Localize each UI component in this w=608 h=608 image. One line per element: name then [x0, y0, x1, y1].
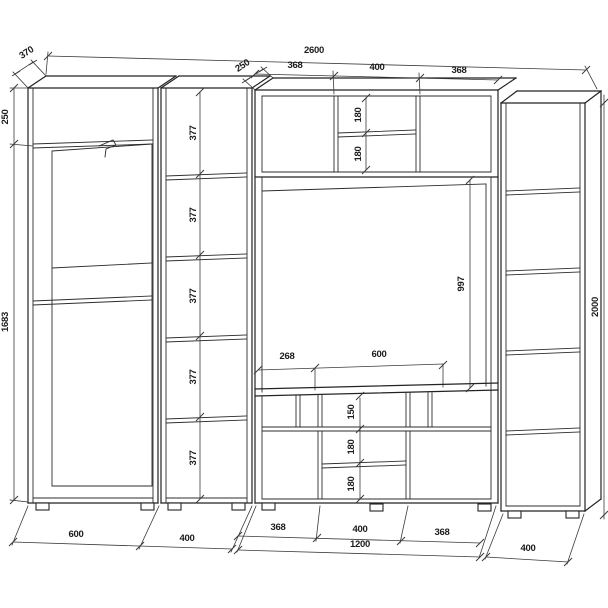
dim-top-400: 400 [370, 62, 385, 73]
top-hutch [255, 78, 516, 177]
dim-bench-180a: 180 [346, 440, 357, 455]
dim-top-368-left: 368 [288, 60, 303, 71]
dim-wardrobe-depth: 370 [17, 44, 36, 61]
dim-hutch-depth: 250 [233, 57, 252, 74]
dim-bottom-1200: 1200 [350, 539, 370, 550]
dim-wardrobe-top-250: 250 [0, 110, 11, 125]
dim-shelf-column: 377 377 377 377 377 [188, 88, 204, 503]
dim-bottom-400-center: 400 [353, 524, 368, 535]
wardrobe-cabinet [28, 76, 176, 510]
dim-bench-180b: 180 [346, 477, 357, 492]
dim-hutch-upper: 180 [353, 108, 364, 123]
dim-shelf-cell-1: 377 [188, 126, 199, 141]
dim-bottom-400-right: 400 [521, 543, 536, 554]
shelf-column [161, 76, 270, 510]
dim-shelf-cell-2: 377 [188, 208, 199, 223]
dim-top: 2600 368 400 368 250 370 [12, 44, 597, 94]
right-shelf-unit [501, 91, 601, 518]
dim-shelf-cell-4: 377 [188, 370, 199, 385]
dim-niche-widths: 268 600 [254, 349, 447, 390]
dim-niche-268: 268 [280, 351, 295, 362]
dim-bottom-368-right: 368 [435, 527, 450, 538]
dim-bottom: 600 400 368 400 368 1200 400 [9, 506, 584, 566]
dim-bottom-600: 600 [69, 529, 84, 540]
dim-hutch: 180 180 [353, 94, 370, 174]
dim-shelf-cell-3: 377 [188, 289, 199, 304]
dim-bottom-400-shelfcol: 400 [180, 533, 195, 544]
dim-wardrobe-side-1683: 1683 [0, 312, 11, 332]
dim-overall-height: 2000 [590, 297, 601, 317]
tv-section-frame [255, 90, 498, 503]
dim-top-368-right: 368 [452, 65, 467, 76]
dim-bench: 150 180 180 [346, 392, 364, 503]
dim-niche-600: 600 [372, 349, 387, 360]
dim-bottom-368-left: 368 [271, 522, 286, 533]
furniture-drawing: 377 377 377 377 377 180 180 [0, 0, 608, 608]
dim-niche-997: 997 [456, 277, 467, 292]
dim-bench-150: 150 [346, 405, 357, 420]
dim-overall-width: 2600 [304, 45, 324, 56]
furniture-drawing-page: 377 377 377 377 377 180 180 [0, 0, 608, 608]
dim-right-height: 2000 [590, 95, 608, 519]
coat-hook-icon [99, 140, 116, 157]
dim-shelf-cell-5: 377 [188, 451, 199, 466]
dim-niche-height: 997 [456, 176, 474, 392]
tv-bench [255, 383, 498, 511]
dim-hutch-lower: 180 [353, 147, 364, 162]
